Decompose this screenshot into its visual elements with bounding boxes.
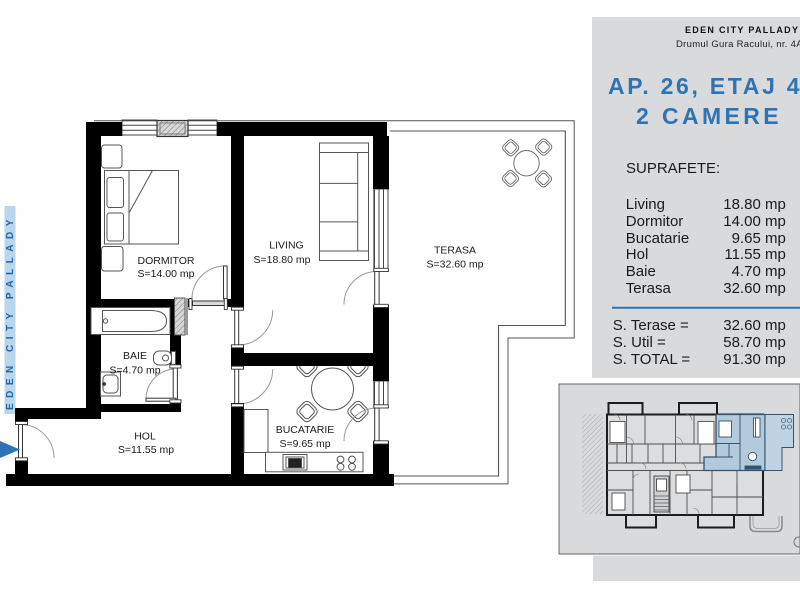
svg-text:S=18.80 mp: S=18.80 mp bbox=[254, 254, 311, 266]
svg-text:BUCATARIE: BUCATARIE bbox=[276, 424, 335, 436]
svg-text:S=11.55 mp: S=11.55 mp bbox=[118, 444, 174, 456]
svg-text:DORMITOR: DORMITOR bbox=[138, 255, 195, 267]
svg-text:HOL: HOL bbox=[134, 431, 156, 443]
svg-text:S=14.00 mp: S=14.00 mp bbox=[138, 268, 195, 280]
svg-text:S=4.70 mp: S=4.70 mp bbox=[109, 365, 160, 377]
svg-text:BAIE: BAIE bbox=[123, 350, 147, 362]
svg-text:LIVING: LIVING bbox=[269, 240, 303, 252]
svg-text:S=32.60 mp: S=32.60 mp bbox=[427, 259, 484, 271]
svg-text:EDEN CITY PALLADY: EDEN CITY PALLADY bbox=[5, 214, 16, 410]
svg-text:S=9.65 mp: S=9.65 mp bbox=[279, 438, 330, 450]
svg-text:TERASA: TERASA bbox=[434, 245, 476, 257]
